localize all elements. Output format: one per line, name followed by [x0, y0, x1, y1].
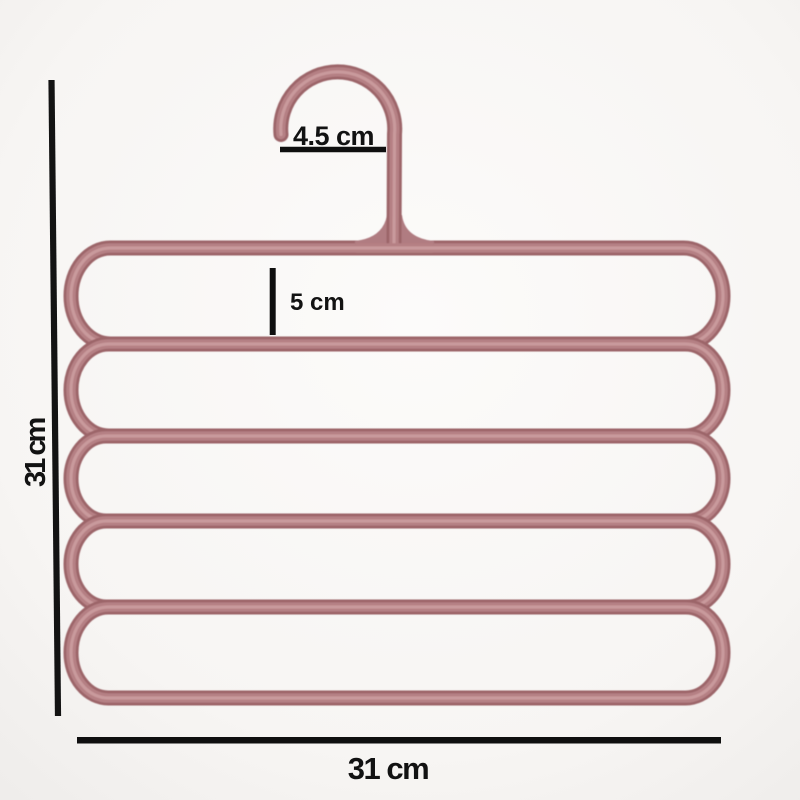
svg-text:31 cm: 31 cm	[348, 751, 428, 786]
svg-text:31 cm: 31 cm	[20, 419, 52, 487]
svg-text:5 cm: 5 cm	[290, 289, 345, 316]
svg-text:4.5 cm: 4.5 cm	[293, 121, 374, 151]
